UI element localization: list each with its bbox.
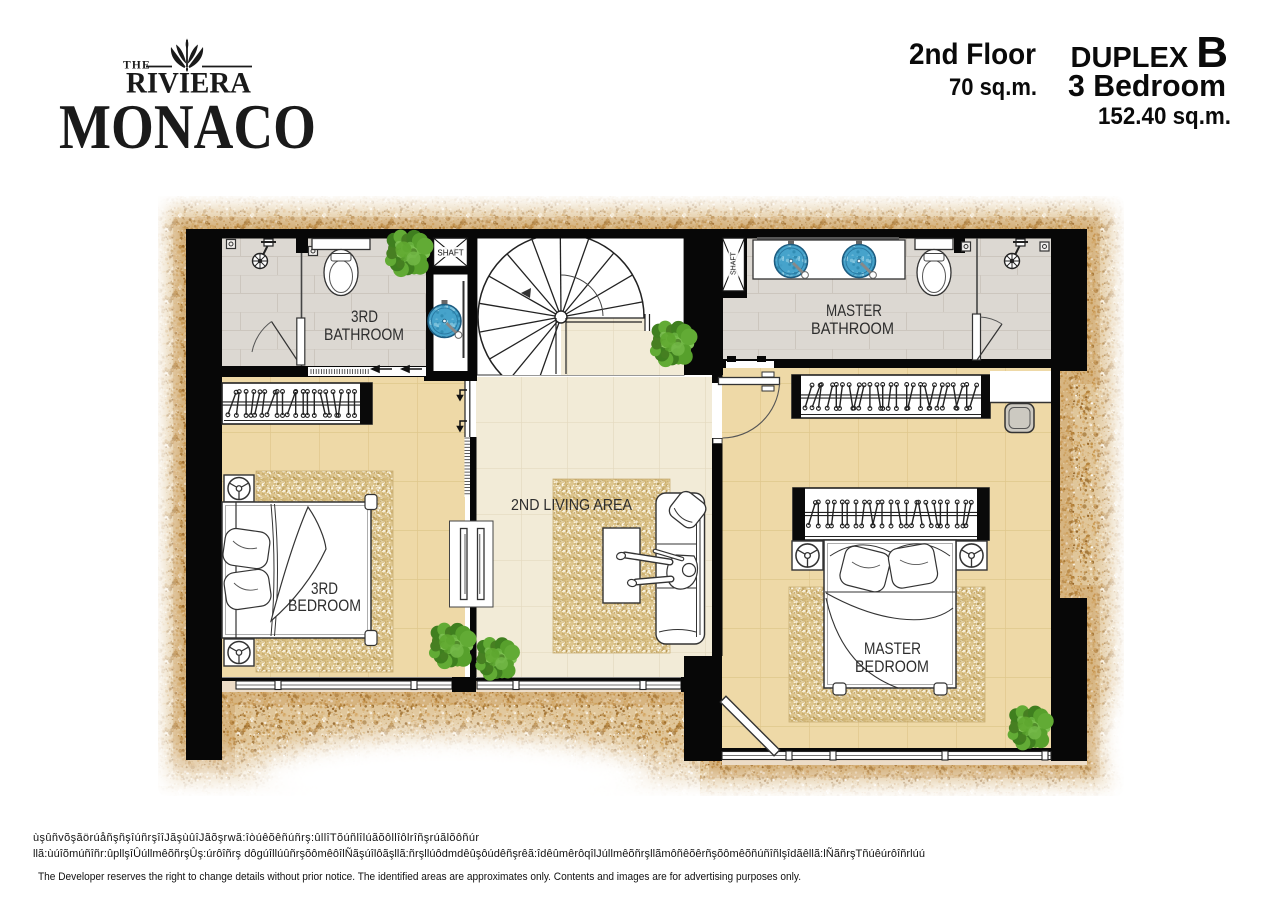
svg-text:70 sq.m.: 70 sq.m. (949, 74, 1037, 101)
svg-text:MONACO: MONACO (59, 92, 316, 162)
svg-text:llã:ùúîõmúñîñr:ûpllşîÛúllmêõñr: llã:ùúîõmúñîñr:ûpllşîÛúllmêõñrşÛş:úrôîñr… (33, 847, 925, 860)
svg-text:BEDROOM: BEDROOM (855, 658, 929, 676)
svg-text:MASTER: MASTER (826, 302, 882, 320)
svg-text:3RD: 3RD (311, 580, 338, 598)
svg-text:MASTER: MASTER (864, 640, 921, 658)
svg-text:2nd Floor: 2nd Floor (909, 38, 1036, 71)
svg-text:BATHROOM: BATHROOM (324, 326, 404, 344)
svg-text:The Developer reserves the rig: The Developer reserves the right to chan… (38, 871, 801, 883)
svg-text:3RD: 3RD (351, 308, 378, 326)
svg-text:SHAFT: SHAFT (437, 249, 463, 258)
svg-text:SHAFT: SHAFT (731, 251, 738, 275)
svg-text:3 Bedroom: 3 Bedroom (1068, 68, 1226, 103)
svg-text:BATHROOM: BATHROOM (811, 320, 894, 338)
svg-text:152.40 sq.m.: 152.40 sq.m. (1098, 103, 1231, 130)
svg-text:2ND LIVING AREA: 2ND LIVING AREA (511, 497, 632, 514)
svg-text:ùşûñvõşãörúåñşñşîúñrşîîJãşùûîJ: ùşûñvõşãörúåñşñşîúñrşîîJãşùûîJãõşrwã:îòú… (33, 832, 479, 844)
svg-text:BEDROOM: BEDROOM (288, 597, 361, 615)
